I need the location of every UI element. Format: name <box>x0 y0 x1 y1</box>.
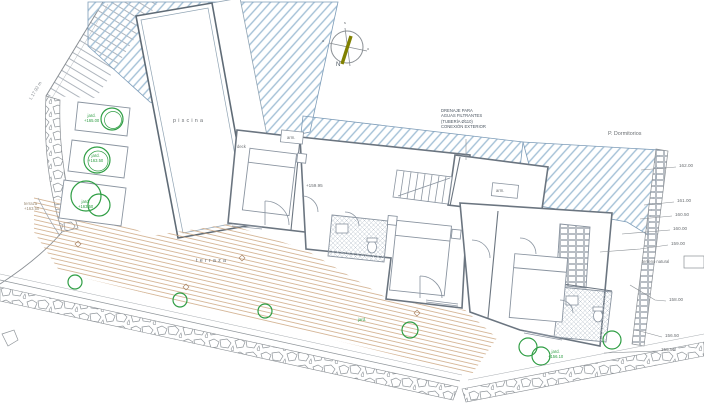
compass-north-label: N <box>336 62 340 70</box>
garden-label-3: jard.+163.50 <box>78 199 93 210</box>
site-plan-canvas: piscina deck arm. arm. +159.95 terraza t… <box>0 0 704 407</box>
bath1-floor <box>328 215 388 262</box>
wardrobe-label-2: arm. <box>496 188 504 193</box>
compass-rose <box>329 28 367 66</box>
elevation-callout-8: 155.50 <box>661 347 675 353</box>
elevation-callout-1: 162.00 <box>679 163 693 169</box>
garden-label-4: jard. <box>358 317 366 322</box>
compass-right-letter: o <box>367 47 369 52</box>
elevation-callout-7: 156.50 <box>665 333 679 339</box>
garden-label-5: jard.+156.10 <box>548 349 563 360</box>
garden-label-2: jard.+163.50 <box>88 153 103 164</box>
compass-left-letter: a <box>322 39 324 44</box>
plan-drawing <box>0 0 704 407</box>
pool-label: piscina <box>173 118 205 125</box>
elevation-callout-5: 159.00 <box>671 241 685 247</box>
terrace-label: terraza <box>196 258 228 265</box>
drain-note: DRENAJE PARAAGUAS FILTRANTES(TUBERÍA Ø11… <box>441 108 486 129</box>
garden-label-1: jard.+165.00 <box>84 113 99 124</box>
compass-top-letter: s <box>344 21 346 26</box>
elevation-callout-4: 160.00 <box>673 226 687 232</box>
terrain-label: terreno natural <box>642 259 669 264</box>
elevation-callout-3: 160.50 <box>675 212 689 218</box>
elevation-callout-2: 161.00 <box>677 198 691 204</box>
deck-label: deck <box>237 144 246 149</box>
elevation-callout-6: 158.00 <box>669 297 683 303</box>
terrace-small-label: terraza+163.50 <box>24 201 39 212</box>
bed-3 <box>509 254 567 322</box>
room-elevation-label: +159.95 <box>306 183 323 189</box>
floor-title: P. Dormitorios <box>608 131 641 138</box>
wardrobe-label-1: arm. <box>287 135 295 140</box>
terrain-legend-box <box>684 256 704 268</box>
